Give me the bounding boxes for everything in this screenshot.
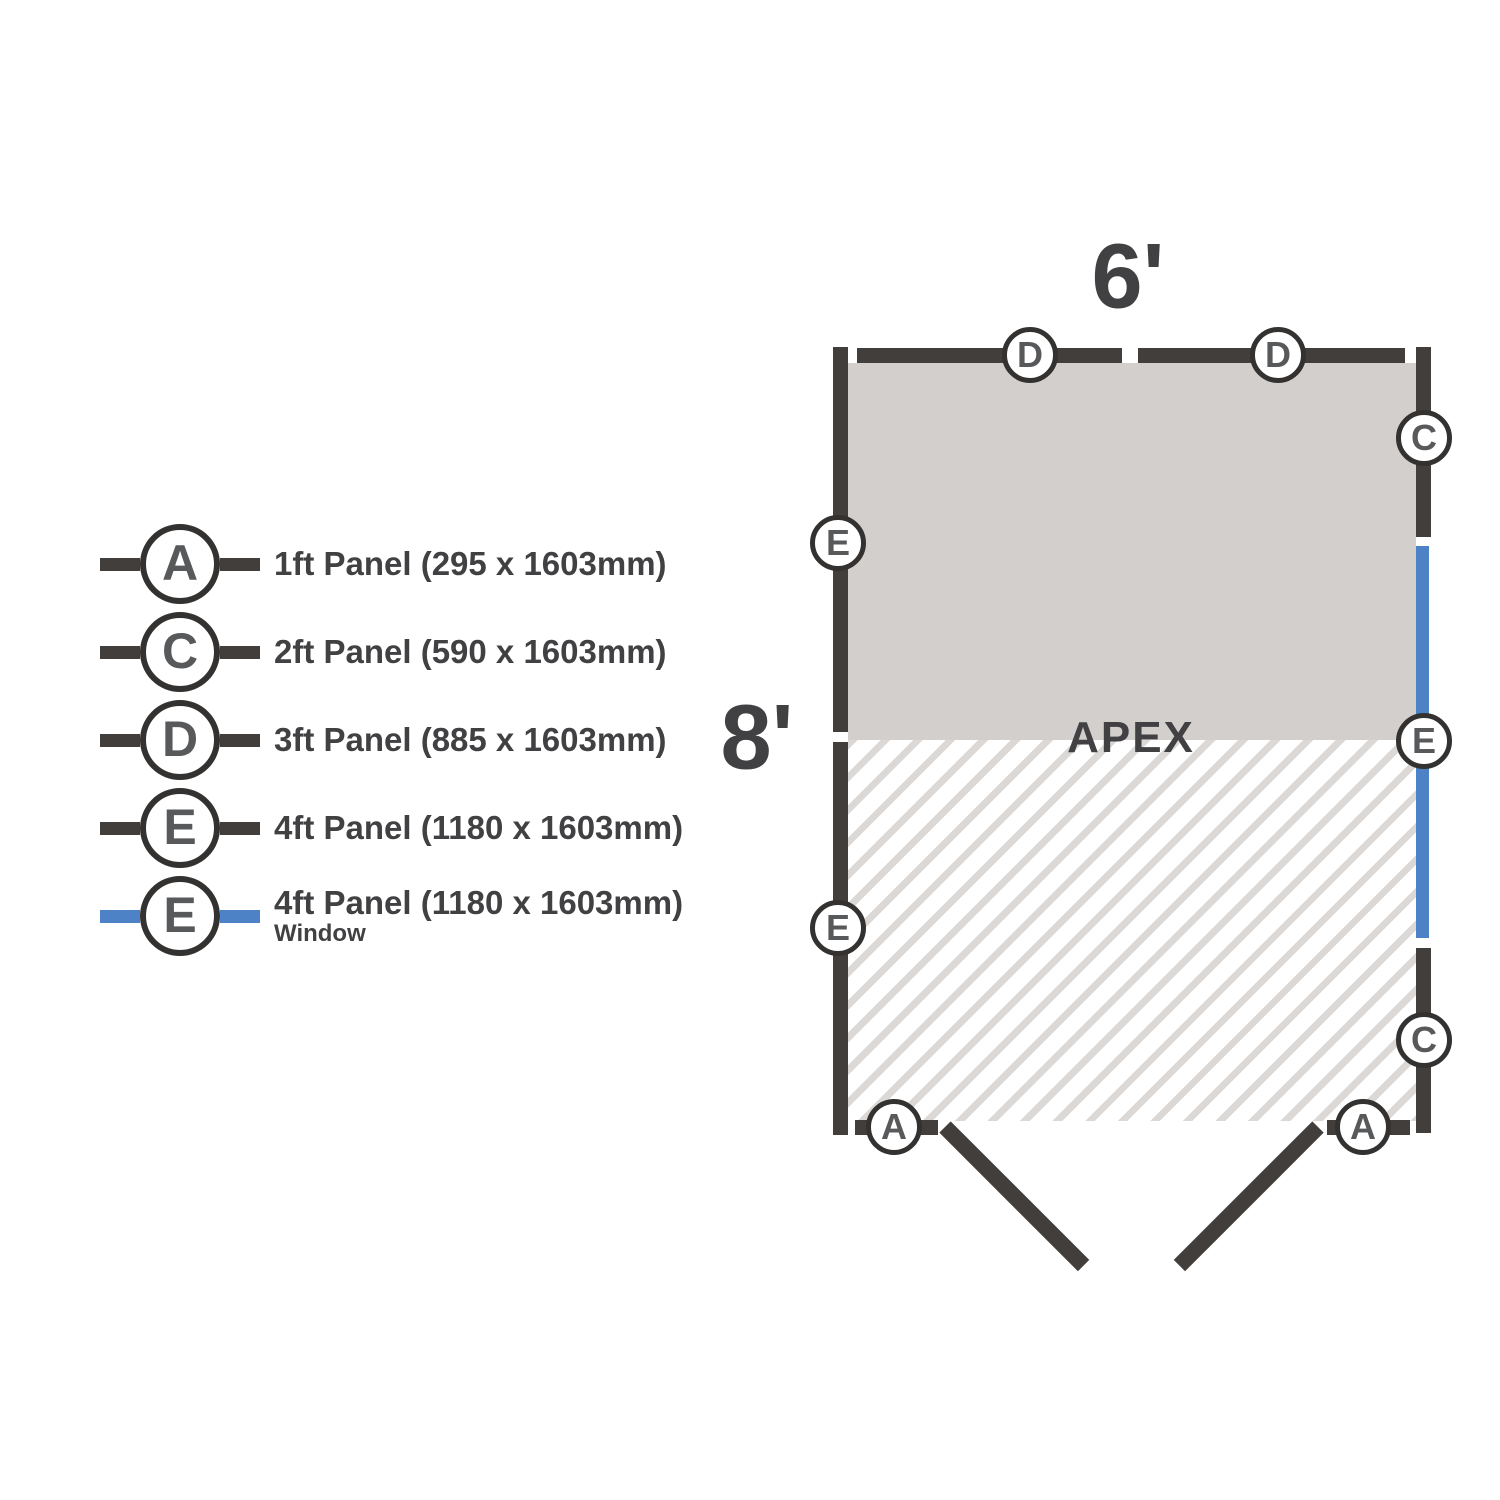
panel-key-badge: E: [140, 788, 220, 868]
panel-marker-a-bottom-left: A: [866, 1099, 922, 1155]
legend-label: 3ft Panel (885 x 1603mm): [274, 722, 667, 758]
panel-marker-e-left-upper: E: [810, 515, 866, 571]
legend-label-wrap: 2ft Panel (590 x 1603mm): [274, 634, 667, 670]
panel-line-right: [220, 558, 260, 571]
panel-marker-e-left-lower: E: [810, 900, 866, 956]
door-leaf-left: [939, 1121, 1089, 1271]
width-dimension-label: 6': [1091, 225, 1164, 330]
panel-marker-a-bottom-right: A: [1335, 1099, 1391, 1155]
panel-marker-c-right-upper: C: [1396, 410, 1452, 466]
wall-top-left-d: [857, 348, 1122, 363]
panel-marker-e-right-window: E: [1396, 713, 1452, 769]
legend-row-c: C 2ft Panel (590 x 1603mm): [100, 608, 740, 696]
panel-line-right-window: [220, 910, 260, 923]
door-leaf-right: [1174, 1121, 1324, 1271]
panel-line-right: [220, 734, 260, 747]
panel-marker-d-top-left: D: [1002, 327, 1058, 383]
apex-label: APEX: [1067, 713, 1195, 763]
panel-legend: A 1ft Panel (295 x 1603mm) C 2ft Panel (…: [100, 520, 740, 960]
shed-panel-diagram: A 1ft Panel (295 x 1603mm) C 2ft Panel (…: [0, 0, 1500, 1500]
panel-line-left: [100, 734, 140, 747]
panel-marker-c-right-lower: C: [1396, 1012, 1452, 1068]
legend-row-e: E 4ft Panel (1180 x 1603mm): [100, 784, 740, 872]
panel-line-right: [220, 646, 260, 659]
legend-row-a: A 1ft Panel (295 x 1603mm): [100, 520, 740, 608]
floor-area-hatched: [848, 740, 1416, 1121]
panel-line-left: [100, 558, 140, 571]
legend-label: 4ft Panel (1180 x 1603mm): [274, 885, 683, 921]
depth-dimension-label: 8': [720, 686, 793, 791]
panel-line-left-window: [100, 910, 140, 923]
legend-label-wrap: 3ft Panel (885 x 1603mm): [274, 722, 667, 758]
panel-key-badge: A: [140, 524, 220, 604]
legend-label: 2ft Panel (590 x 1603mm): [274, 634, 667, 670]
panel-line-left: [100, 646, 140, 659]
panel-key-badge: C: [140, 612, 220, 692]
legend-row-d: D 3ft Panel (885 x 1603mm): [100, 696, 740, 784]
panel-marker-d-top-right: D: [1250, 327, 1306, 383]
panel-line-right: [220, 822, 260, 835]
legend-row-e-window: E 4ft Panel (1180 x 1603mm) Window: [100, 872, 740, 960]
panel-key-badge: D: [140, 700, 220, 780]
legend-label-wrap: 1ft Panel (295 x 1603mm): [274, 546, 667, 582]
legend-label-wrap: 4ft Panel (1180 x 1603mm): [274, 810, 683, 846]
legend-label-wrap: 4ft Panel (1180 x 1603mm) Window: [274, 885, 683, 947]
legend-label: 1ft Panel (295 x 1603mm): [274, 546, 667, 582]
floor-area-front: [848, 363, 1416, 740]
panel-key-badge: E: [140, 876, 220, 956]
panel-line-left: [100, 822, 140, 835]
legend-sublabel-window: Window: [274, 921, 683, 947]
legend-label: 4ft Panel (1180 x 1603mm): [274, 810, 683, 846]
